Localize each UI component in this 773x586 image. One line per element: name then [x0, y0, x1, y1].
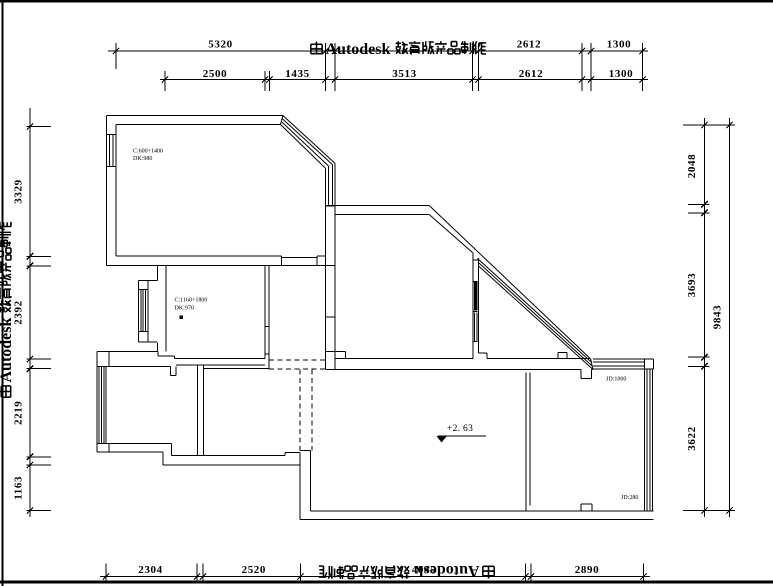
svg-text:1163: 1163 — [13, 476, 25, 500]
svg-text:2304: 2304 — [138, 564, 162, 576]
svg-text:1435: 1435 — [285, 68, 309, 80]
svg-text:3622: 3622 — [686, 426, 698, 450]
svg-text:JD:280: JD:280 — [621, 495, 638, 501]
svg-text:2520: 2520 — [242, 564, 266, 576]
svg-text:2612: 2612 — [519, 68, 543, 80]
svg-text:2048: 2048 — [686, 154, 698, 178]
svg-text:C:600+1400: C:600+1400 — [133, 149, 163, 155]
svg-text:5320: 5320 — [208, 39, 232, 51]
svg-text:2612: 2612 — [517, 39, 541, 51]
svg-text:2219: 2219 — [13, 401, 25, 425]
svg-text:3513: 3513 — [392, 68, 416, 80]
svg-text:DK:970: DK:970 — [175, 306, 194, 312]
svg-text:+2. 63: +2. 63 — [447, 424, 473, 434]
svg-text:2500: 2500 — [203, 68, 227, 80]
svg-text:1300: 1300 — [609, 68, 633, 80]
svg-text:DK:980: DK:980 — [133, 156, 152, 162]
svg-text:JD:1000: JD:1000 — [606, 377, 626, 383]
svg-text:2890: 2890 — [575, 564, 599, 576]
svg-text:3693: 3693 — [686, 273, 698, 297]
svg-text:9843: 9843 — [712, 305, 724, 329]
svg-text:3329: 3329 — [13, 179, 25, 203]
svg-text:C:1160+1800: C:1160+1800 — [175, 298, 208, 304]
svg-text:1300: 1300 — [607, 39, 631, 51]
